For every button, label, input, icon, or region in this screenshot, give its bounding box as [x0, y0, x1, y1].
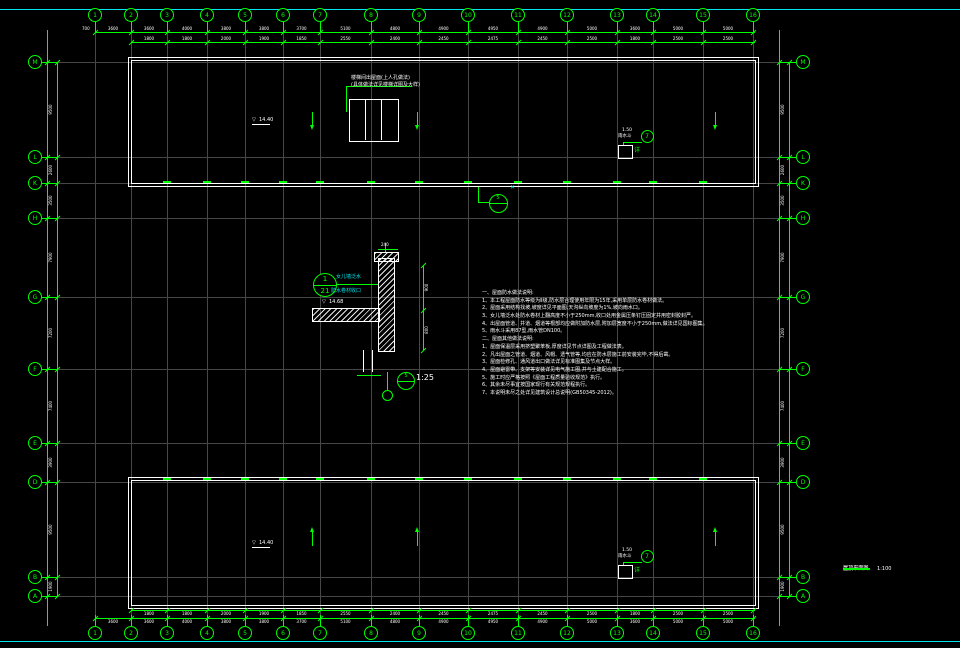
stair-note-line2: (具体做法详见楼梯详图及大样)	[351, 82, 420, 89]
grid-bubble-top-3: 3	[160, 8, 174, 22]
dim-label-right: 1900	[781, 577, 785, 596]
drain-box	[618, 145, 633, 159]
dim-label-top1: 4950	[468, 27, 518, 31]
note-line-8: 1、屋面保温层采用挤塑聚苯板,厚度详见节点详图及工程做法表。	[482, 345, 708, 350]
grid-bubble-bottom-7: 7	[313, 626, 327, 640]
grid-bubble-left-H: H	[28, 211, 42, 225]
dim-label-bottom1: 4800	[371, 620, 419, 624]
dim-line-bottom-outer	[95, 618, 755, 619]
note-line-4: 3、女儿墙泛水处防水卷材上翻高度不小于250mm,收口处用金属压条钉压固定并用密…	[482, 314, 708, 319]
dim-line-left-inner	[57, 62, 58, 596]
grid-bubble-bottom-10: 10	[461, 626, 475, 640]
dim-label-bottom2: 2000	[207, 612, 245, 616]
grid-bubble-top-11: 11	[511, 8, 525, 22]
detail-note-cyan1: 女儿墙泛水	[336, 275, 361, 280]
dim-label-left: 3900	[49, 443, 53, 482]
dim-label-top1: 3600	[617, 27, 653, 31]
grid-bubble-bottom-8: 8	[364, 626, 378, 640]
dim-label-top2: 2450	[518, 37, 567, 41]
dim-label-bottom1: 3800	[207, 620, 245, 624]
slope-arrow-head-icon	[713, 125, 717, 130]
dim-label-left: 7900	[49, 218, 53, 297]
dim-line-top-inner	[131, 42, 755, 43]
dim-line-top-outer	[95, 32, 755, 33]
dim-label-bottom2: 1800	[617, 612, 653, 616]
dim-label-top2: 1900	[245, 37, 283, 41]
detail-scale-bubble: 5	[397, 372, 415, 390]
dim-label-bottom1: 3600	[131, 620, 167, 624]
dim-label-top2: 2000	[207, 37, 245, 41]
sheet-frame-top	[0, 9, 960, 10]
drain-tag: 详	[634, 148, 640, 154]
dim-label-bottom2: 2500	[703, 612, 753, 616]
grid-bubble-bottom-1: 1	[88, 626, 102, 640]
grid-bubble-bottom-3: 3	[160, 626, 174, 640]
dim-label-top2: 2400	[371, 37, 419, 41]
detail-ref-bubble-label: 1	[314, 274, 336, 284]
level-triangle-icon: ▽	[252, 541, 256, 546]
grid-bubble-right-E: E	[796, 436, 810, 450]
note-line-2: 1、本工程屋面防水等级为Ⅱ级,防水层合理使用年限为15年,采用单层防水卷材做法。	[482, 299, 708, 304]
dim-label-left: 9500	[49, 62, 53, 157]
grid-bubble-bottom-9: 9	[412, 626, 426, 640]
grid-bubble-right-A: A	[796, 589, 810, 603]
grid-bubble-bottom-12: 12	[560, 626, 574, 640]
dim-label-top1: 3800	[207, 27, 245, 31]
grid-bubble-top-16: 16	[746, 8, 760, 22]
dim-label-right: 9500	[781, 482, 785, 577]
dim-label-right: 7200	[781, 297, 785, 369]
grid-bubble-top-14: 14	[646, 8, 660, 22]
dim-label-top1: 4900	[518, 27, 567, 31]
note-line-7: 二、屋面其他做法说明:	[482, 337, 708, 342]
dim-label-bottom2: 2400	[371, 612, 419, 616]
detail-callout-bubble-label: 5	[490, 195, 507, 203]
callout-leader-h	[478, 202, 489, 203]
grid-bubble-bottom-14: 14	[646, 626, 660, 640]
dim-label-top2: 2450	[419, 37, 468, 41]
dim-label-left: 1900	[49, 577, 53, 596]
grid-bubble-right-D: D	[796, 475, 810, 489]
dim-label-top1: 5000	[567, 27, 617, 31]
level-triangle-icon: ▽	[252, 118, 256, 123]
grid-line-v-1	[95, 25, 96, 627]
detail-dim-top-line	[378, 249, 398, 250]
grid-bubble-right-L: L	[796, 150, 810, 164]
dim-label-bottom2: 2500	[567, 612, 617, 616]
building-outline-2	[128, 477, 759, 609]
dim-label-bottom1: 3800	[245, 620, 283, 624]
detail-note-cyan2: 防水卷材收口	[331, 289, 361, 294]
dim-label-top1: 3600	[131, 27, 167, 31]
note-line-12: 5、施工时应严格按照《屋面工程质量验收规范》执行。	[482, 376, 708, 381]
grid-bubble-bottom-6: 6	[276, 626, 290, 640]
grid-bubble-right-B: B	[796, 570, 810, 584]
dim-label-bottom2: 1850	[283, 612, 320, 616]
dim-label-lead: 700	[82, 27, 90, 31]
grid-bubble-right-F: F	[796, 362, 810, 376]
drain-label: 雨水斗	[618, 135, 632, 140]
grid-bubble-top-8: 8	[364, 8, 378, 22]
grid-line-h-H	[58, 218, 796, 219]
grid-bubble-bottom-16: 16	[746, 626, 760, 640]
title-underline	[843, 568, 870, 570]
detail-drain-pipe	[363, 350, 364, 372]
dim-label-bottom2: 2475	[468, 612, 518, 616]
drawing-scale: 1:100	[877, 566, 891, 572]
dim-label-top2: 1800	[131, 37, 167, 41]
dim-label-bottom1: 3700	[283, 620, 320, 624]
dim-label-top2: 2500	[653, 37, 703, 41]
note-line-9: 2、凡出屋面之管道、烟道、风帽、透气管等,均应在防水层施工前安装完毕,不得后凿。	[482, 353, 708, 358]
detail-dim-top-label: 240	[381, 243, 389, 247]
dim-label-top1: 4000	[167, 27, 207, 31]
detail-small-circle-icon	[382, 390, 393, 401]
dim-label-top2: 2550	[320, 37, 371, 41]
detail-parapet-cap	[374, 252, 399, 262]
detail-drain-pipe	[372, 350, 373, 372]
grid-bubble-left-G: G	[28, 290, 42, 304]
drain-label: 雨水斗	[618, 555, 632, 560]
detail-ref-leader	[335, 284, 378, 285]
wall-x-mark: ✕	[510, 185, 515, 191]
dim-label-top1: 4900	[419, 27, 468, 31]
dim-label-bottom2: 1800	[131, 612, 167, 616]
callout-leader-v	[478, 186, 479, 202]
dim-label-bottom1: 5100	[320, 620, 371, 624]
detail-callout-bubble-divider	[490, 203, 507, 204]
dim-label-left: 7400	[49, 369, 53, 443]
dim-label-bottom1: 4900	[419, 620, 468, 624]
slope-arrow-head-icon	[310, 125, 314, 130]
grid-bubble-top-1: 1	[88, 8, 102, 22]
dim-label-bottom1: 5000	[653, 620, 703, 624]
dim-label-top1: 5100	[320, 27, 371, 31]
grid-bubble-left-K: K	[28, 176, 42, 190]
drawing-title-block: 屋顶平面图1:100	[843, 555, 891, 574]
detail-dim-right-label: 900	[425, 265, 429, 310]
grid-bubble-top-6: 6	[276, 8, 290, 22]
dim-label-right: 9500	[781, 62, 785, 157]
note-line-14: 7、本说明未尽之处详见建筑设计总说明(GB50345-2012)。	[482, 391, 708, 396]
grid-bubble-top-4: 4	[200, 8, 214, 22]
dim-label-right: 7400	[781, 369, 785, 443]
slope-arrow-head-icon	[713, 527, 717, 532]
stair-note-line1: 楼梯间出屋面(上人孔做法)	[351, 75, 420, 82]
detail-level-triangle-icon: ▽	[322, 300, 326, 305]
note-line-6: 5、雨水斗采用87型,雨水管DN100。	[482, 329, 708, 334]
grid-bubble-top-5: 5	[238, 8, 252, 22]
grid-bubble-bottom-5: 5	[238, 626, 252, 640]
grid-bubble-right-M: M	[796, 55, 810, 69]
dim-label-top1: 5000	[703, 27, 753, 31]
sheet-frame-bottom	[0, 641, 960, 642]
grid-bubble-right-H: H	[796, 211, 810, 225]
dim-label-left: 7200	[49, 297, 53, 369]
dim-label-bottom1: 3600	[617, 620, 653, 624]
dim-label-top1: 3800	[245, 27, 283, 31]
detail-roof-slab	[312, 308, 380, 322]
grid-bubble-bottom-11: 11	[511, 626, 525, 640]
dim-label-top2: 1800	[167, 37, 207, 41]
dim-label-top2: 2475	[468, 37, 518, 41]
detail-parapet-wall	[378, 258, 395, 352]
note-line-1: 一、屋面防水做法说明:	[482, 291, 708, 296]
stair-bulkhead-note: 楼梯间出屋面(上人孔做法) (具体做法详见楼梯详图及大样)	[351, 75, 420, 89]
dim-label-bottom1: 5000	[703, 620, 753, 624]
grid-bubble-left-B: B	[28, 570, 42, 584]
dim-label-bottom2: 2550	[320, 612, 371, 616]
slope-arrow-head-icon	[415, 125, 419, 130]
grid-bubble-top-12: 12	[560, 8, 574, 22]
level-value: 14.40	[259, 118, 273, 123]
grid-bubble-left-M: M	[28, 55, 42, 69]
dim-label-bottom1: 3600	[95, 620, 131, 624]
detail-level-value: 14.68	[329, 300, 343, 305]
grid-bubble-right-G: G	[796, 290, 810, 304]
cad-sheet: 1122334455667788991010111112121313141415…	[0, 0, 960, 648]
dim-label-bottom1: 5000	[567, 620, 617, 624]
dim-label-top2: 1850	[283, 37, 320, 41]
grid-bubble-bottom-2: 2	[124, 626, 138, 640]
stair-bulkhead-box	[349, 99, 399, 142]
grid-bubble-right-K: K	[796, 176, 810, 190]
grid-bubble-left-F: F	[28, 362, 42, 376]
drain-elevation: 1.50	[622, 549, 632, 554]
drain-box	[618, 565, 633, 579]
building-outline-1	[128, 57, 759, 187]
detail-callout-bubble: 5	[489, 194, 508, 213]
grid-bubble-top-9: 9	[412, 8, 426, 22]
dim-label-bottom2: 1900	[245, 612, 283, 616]
detail-scale-bubble-label: 5	[398, 373, 414, 380]
dim-label-left: 2600	[49, 157, 53, 183]
grid-bubble-left-E: E	[28, 436, 42, 450]
dim-line-right-inner	[789, 62, 790, 596]
grid-bubble-top-10: 10	[461, 8, 475, 22]
grid-line-h-E	[58, 443, 796, 444]
dim-label-bottom2: 2450	[518, 612, 567, 616]
grid-bubble-bottom-4: 4	[200, 626, 214, 640]
drain-ref-bubble: 7	[641, 130, 654, 143]
detail-scale-leader	[387, 372, 388, 390]
dim-label-top1: 4800	[371, 27, 419, 31]
grid-bubble-left-A: A	[28, 589, 42, 603]
slope-arrow-head-icon	[415, 527, 419, 532]
dim-label-bottom2: 2500	[653, 612, 703, 616]
dim-label-right: 7900	[781, 218, 785, 297]
detail-base-line	[357, 375, 381, 376]
dim-label-right: 3900	[781, 443, 785, 482]
drain-elevation: 1.50	[622, 129, 632, 134]
drain-ref-bubble: 7	[641, 550, 654, 563]
notes-block: 一、屋面防水做法说明:1、本工程屋面防水等级为Ⅱ级,防水层合理使用年限为15年,…	[482, 291, 708, 399]
note-line-10: 3、屋面检修孔、通风道出口做法详见标准图集及节点大样。	[482, 360, 708, 365]
grid-bubble-top-7: 7	[313, 8, 327, 22]
grid-bubble-top-2: 2	[124, 8, 138, 22]
grid-bubble-left-L: L	[28, 150, 42, 164]
dim-label-bottom1: 4950	[468, 620, 518, 624]
dim-label-top2: 2500	[703, 37, 753, 41]
dim-label-top2: 1800	[617, 37, 653, 41]
dim-label-left: 9500	[49, 482, 53, 577]
grid-bubble-top-13: 13	[610, 8, 624, 22]
drain-tag: 详	[634, 568, 640, 574]
dim-label-bottom2: 1800	[167, 612, 207, 616]
detail-scale-text: 1:25	[416, 374, 434, 382]
dim-label-top2: 2500	[567, 37, 617, 41]
dim-label-left: 3500	[49, 183, 53, 218]
detail-scale-bubble-divider	[398, 381, 414, 382]
detail-dim-right-label: 800	[425, 310, 429, 350]
grid-bubble-top-15: 15	[696, 8, 710, 22]
note-line-3: 2、屋面采用结构找坡,坡度详见平面图,天沟纵向坡度为1%,坡向雨水口。	[482, 306, 708, 311]
dim-label-right: 3500	[781, 183, 785, 218]
dim-label-bottom1: 4900	[518, 620, 567, 624]
dim-label-right: 2600	[781, 157, 785, 183]
note-line-11: 4、屋面避雷带、支架等安装详见电气施工图,并与土建配合施工。	[482, 368, 708, 373]
level-value: 14.40	[259, 541, 273, 546]
note-line-5: 4、出屋面管道、井道、烟道等根部均应做附加防水层,附加层宽度不小于250mm,做…	[482, 322, 708, 327]
dim-label-top1: 3600	[95, 27, 131, 31]
dim-label-top1: 5000	[653, 27, 703, 31]
slope-arrow-head-icon	[310, 527, 314, 532]
note-line-13: 6、其余未尽事宜按国家现行有关规范规程执行。	[482, 383, 708, 388]
grid-bubble-bottom-13: 13	[610, 626, 624, 640]
dim-label-top1: 3700	[283, 27, 320, 31]
grid-bubble-bottom-15: 15	[696, 626, 710, 640]
grid-bubble-left-D: D	[28, 475, 42, 489]
dim-label-bottom2: 2450	[419, 612, 468, 616]
dim-label-bottom1: 4000	[167, 620, 207, 624]
